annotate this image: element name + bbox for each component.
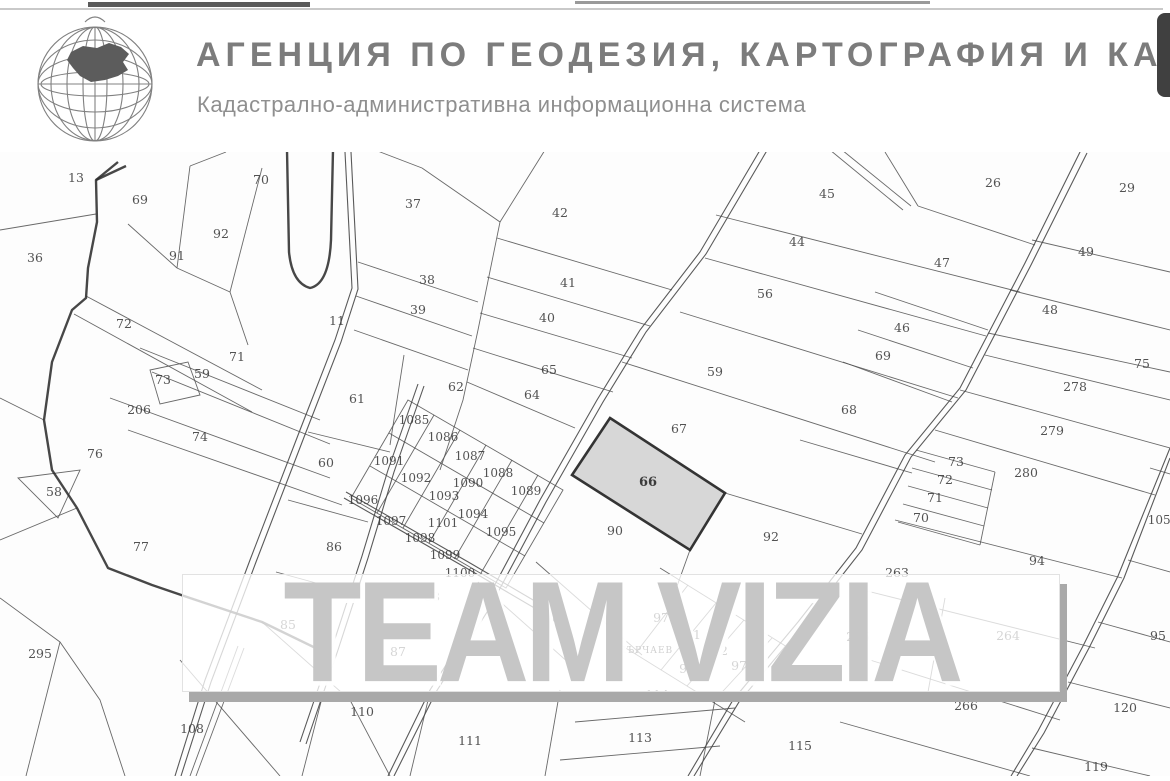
parcel-boundary (86, 296, 262, 390)
parcel-number-280: 280 (1014, 465, 1038, 480)
parcel-boundary (74, 314, 252, 412)
parcel-number-71: 71 (229, 349, 245, 364)
header-gray-segment (575, 1, 930, 4)
parcel-boundary (725, 493, 862, 534)
parcel-number-70: 70 (253, 172, 269, 187)
parcel-number-67: 67 (671, 421, 687, 436)
parcel-number-26: 26 (985, 175, 1001, 190)
parcel-number-94: 94 (1029, 553, 1045, 568)
parcel-boundary (302, 698, 322, 776)
parcel-number-108: 108 (180, 721, 204, 736)
selected-parcel-number: 66 (639, 475, 657, 490)
parcel-boundary (230, 292, 248, 345)
parcel-number-47: 47 (934, 255, 950, 270)
parcel-boundary (960, 390, 1170, 448)
agency-title: АГЕНЦИЯ ПО ГЕОДЕЗИЯ, КАРТОГРАФИЯ И КАДА (196, 36, 1170, 74)
parcel-number-1090: 1090 (453, 476, 484, 490)
parcel-number-64: 64 (524, 387, 540, 402)
parcel-number-75: 75 (1134, 356, 1150, 371)
parcel-boundary (354, 330, 468, 370)
parcel-number-39: 39 (410, 302, 426, 317)
parcel-boundary (918, 206, 1035, 245)
parcel-number-40: 40 (539, 310, 555, 325)
parcel-number-1094: 1094 (458, 507, 489, 521)
parcel-number-1092: 1092 (401, 471, 432, 485)
parcel-boundary (840, 722, 1030, 776)
parcel-boundary (622, 362, 935, 462)
parcel-number-77: 77 (133, 539, 149, 554)
parcel-number-115: 115 (788, 738, 812, 753)
parcel-boundary (410, 692, 430, 776)
parcel-number-58: 58 (46, 484, 62, 499)
parcel-boundary (0, 214, 96, 230)
parcel-number-1099: 1099 (430, 548, 461, 562)
parcel-boundary (375, 150, 422, 168)
parcel-number-59: 59 (707, 364, 723, 379)
parcel-number-11: 11 (329, 313, 345, 328)
parcel-boundary (1010, 290, 1170, 330)
parcel-boundary (800, 440, 912, 473)
parcel-number-1091: 1091 (374, 454, 405, 468)
system-subtitle: Кадастрално-административна информационн… (197, 92, 806, 118)
parcel-number-68: 68 (841, 402, 857, 417)
parcel-number-37: 37 (405, 196, 421, 211)
parcel-number-70: 70 (913, 510, 929, 525)
parcel-number-90: 90 (607, 523, 623, 538)
parcel-number-71: 71 (927, 490, 943, 505)
parcel-boundary (716, 215, 1020, 292)
parcel-number-38: 38 (419, 272, 435, 287)
parcel-number-1089: 1089 (511, 484, 542, 498)
parcel-boundary (422, 168, 500, 470)
parcel-boundary (0, 398, 44, 420)
parcel-boundary (875, 292, 988, 330)
header-dark-segment (88, 2, 310, 7)
parcel-number-278: 278 (1063, 379, 1087, 394)
parcel-boundary (843, 362, 952, 402)
parcel-number-279: 279 (1040, 423, 1064, 438)
bulgaria-silhouette (67, 43, 129, 82)
parcel-number-74: 74 (192, 429, 208, 444)
parcel-number-92: 92 (763, 529, 779, 544)
parcel-number-60: 60 (318, 455, 334, 470)
parcel-boundary (128, 430, 342, 505)
parcel-boundary (26, 642, 60, 776)
parcel-number-69: 69 (132, 192, 148, 207)
parcel-boundary (545, 690, 560, 776)
parcel-number-73: 73 (948, 454, 964, 469)
parcel-number-86: 86 (326, 539, 342, 554)
parcel-number-13: 13 (68, 170, 84, 185)
parcel-number-1093: 1093 (429, 489, 460, 503)
parcel-boundary (980, 472, 995, 545)
parcel-boundary (500, 150, 545, 222)
parcel-boundary (895, 520, 1122, 578)
parcel-number-111: 111 (458, 733, 482, 748)
parcel-boundary (177, 268, 230, 292)
parcel-boundary (830, 150, 903, 210)
parcel-number-1086: 1086 (428, 430, 459, 444)
parcel-boundary (152, 372, 330, 444)
header-top-rule (0, 8, 1163, 10)
app-header: АГЕНЦИЯ ПО ГЕОДЕЗИЯ, КАРТОГРАФИЯ И КАДА … (0, 0, 1170, 152)
parcel-number-73: 73 (155, 372, 171, 387)
globe-bulgaria-logo (25, 10, 167, 150)
parcel-number-1097: 1097 (376, 514, 407, 528)
parcel-number-1095: 1095 (486, 525, 517, 539)
parcel-number-46: 46 (894, 320, 910, 335)
parcel-boundary (680, 312, 958, 398)
parcel-number-65: 65 (541, 362, 557, 377)
parcel-number-48: 48 (1042, 302, 1058, 317)
parcel-number-120: 120 (1113, 700, 1137, 715)
parcel-boundary (1032, 240, 1170, 272)
parcel-boundary (898, 522, 980, 545)
parcel-boundary (308, 432, 390, 452)
parcel-number-45: 45 (819, 186, 835, 201)
parcel-number-206: 206 (127, 402, 151, 417)
parcel-number-42: 42 (552, 205, 568, 220)
parcel-number-76: 76 (87, 446, 103, 461)
parcel-number-91: 91 (169, 248, 185, 263)
parcel-boundary (190, 152, 226, 166)
side-scroll-tab[interactable] (1157, 13, 1170, 97)
parcel-number-1085: 1085 (399, 413, 430, 427)
parcel-number-95: 95 (1150, 628, 1166, 643)
parcel-number-119: 119 (1084, 759, 1108, 774)
parcel-number-72: 72 (937, 472, 953, 487)
parcel-boundary (0, 598, 125, 776)
land-boundary-thick (287, 150, 333, 288)
parcel-number-49: 49 (1078, 244, 1094, 259)
parcel-boundary (467, 382, 575, 428)
parcel-number-92: 92 (213, 226, 229, 241)
parcel-number-1101: 1101 (428, 516, 459, 530)
parcel-number-1054: 1054 (1148, 513, 1170, 527)
parcel-boundary (358, 262, 478, 302)
parcel-number-61: 61 (349, 391, 365, 406)
parcel-number-1087: 1087 (455, 449, 486, 463)
parcel-number-62: 62 (448, 379, 464, 394)
parcel-number-1098: 1098 (405, 531, 436, 545)
parcel-number-72: 72 (116, 316, 132, 331)
parcel-boundary (908, 486, 988, 508)
parcel-number-36: 36 (27, 250, 43, 265)
parcel-boundary (560, 746, 720, 760)
parcel-number-295: 295 (28, 646, 52, 661)
parcel-number-59: 59 (194, 366, 210, 381)
parcel-number-110: 110 (350, 704, 374, 719)
parcel-number-56: 56 (757, 286, 773, 301)
parcel-number-69: 69 (875, 348, 891, 363)
parcel-boundary (1128, 560, 1170, 572)
parcel-number-1088: 1088 (483, 466, 514, 480)
parcel-boundary (0, 508, 77, 540)
parcel-number-113: 113 (628, 730, 652, 745)
parcel-boundary (480, 313, 632, 358)
parcel-number-266: 266 (954, 698, 978, 713)
parcel-number-44: 44 (789, 234, 805, 249)
parcel-number-41: 41 (560, 275, 576, 290)
watermark-text: TEAM VIZIA (283, 574, 958, 692)
parcel-boundary (497, 238, 672, 290)
parcel-number-1096: 1096 (348, 493, 379, 507)
parcel-number-29: 29 (1119, 180, 1135, 195)
parcel-boundary (935, 430, 1155, 495)
watermark-box: TEAM VIZIA (182, 574, 1060, 692)
parcel-boundary (700, 700, 715, 776)
